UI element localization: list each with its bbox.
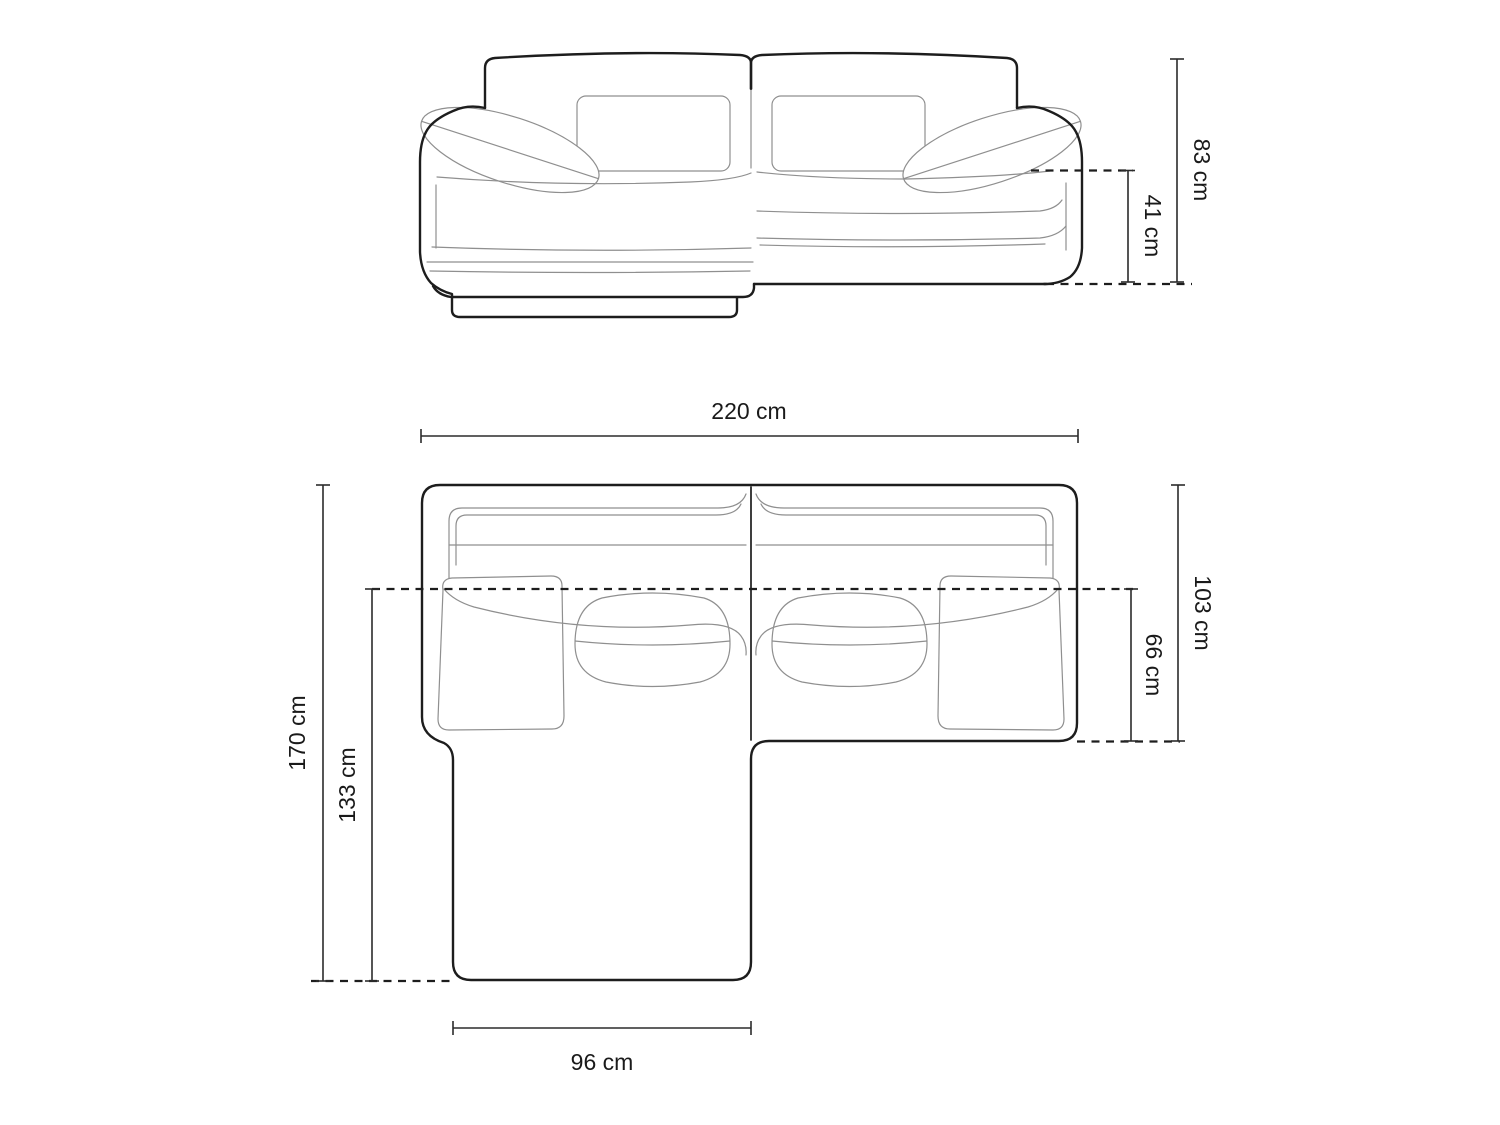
top-body-outline: [422, 485, 1077, 980]
dim-seat-depth: [1124, 589, 1138, 741]
label-total-height: 83 cm: [1189, 139, 1215, 202]
top-seat-bolster-right: [772, 593, 927, 687]
label-seat-depth: 66 cm: [1141, 634, 1167, 697]
top-backrest-right-outer: [756, 494, 1053, 578]
front-right-seat-seam-1: [757, 200, 1062, 214]
dim-chaise-total-length: [316, 485, 330, 981]
top-backrest-left-inner: [456, 504, 741, 565]
label-chaise-clear-length: 133 cm: [334, 747, 360, 822]
top-view: [422, 485, 1077, 980]
dim-total-width: [421, 429, 1078, 443]
front-left-seat-seam-1: [432, 247, 751, 250]
top-backrest-left-outer: [449, 494, 746, 578]
front-view: [411, 53, 1090, 317]
dimension-diagram: 83 cm 41 cm 220 cm 103 cm 66 cm 170 cm 1…: [0, 0, 1500, 1125]
front-chaise-bottom-edge: [433, 284, 754, 297]
label-total-depth: 103 cm: [1190, 575, 1216, 650]
top-backrest-right-inner: [761, 504, 1046, 565]
front-right-seat-seam-2: [757, 226, 1066, 240]
label-total-width: 220 cm: [711, 398, 786, 424]
front-back-pillow-right: [772, 96, 925, 171]
front-plinth-outline: [452, 297, 737, 317]
front-left-seat-seam-3: [430, 271, 750, 273]
front-back-pillow-left: [577, 96, 730, 171]
dim-chaise-clear-length: [365, 589, 379, 981]
top-backrest-left-bottom: [444, 589, 746, 655]
dim-chaise-width: [453, 1021, 751, 1035]
top-seat-bolster-left: [575, 593, 730, 687]
label-seat-height: 41 cm: [1140, 195, 1166, 258]
sofa-diagram-canvas: 83 cm 41 cm 220 cm 103 cm 66 cm 170 cm 1…: [0, 0, 1500, 1125]
label-chaise-width: 96 cm: [571, 1049, 634, 1075]
label-chaise-total-length: 170 cm: [284, 695, 310, 770]
dim-total-height: [1170, 59, 1184, 282]
dim-total-depth: [1171, 485, 1185, 741]
dim-seat-height: [1121, 171, 1135, 283]
top-backrest-right-bottom: [756, 589, 1058, 655]
front-right-seat-seam-3: [760, 244, 1045, 247]
